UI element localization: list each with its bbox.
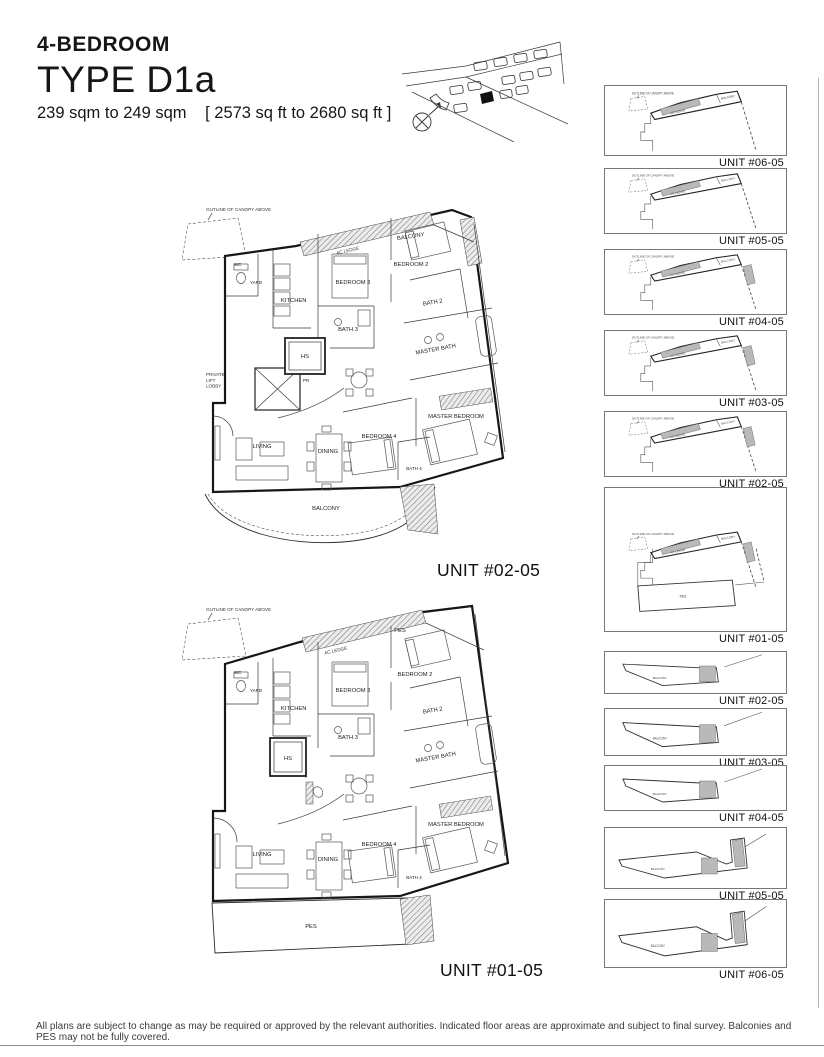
- room-label-dining: DINING: [318, 857, 339, 863]
- keyplan-label: UNIT #02-05: [604, 694, 787, 707]
- room-label-bedroom4: BEDROOM 4: [362, 842, 398, 848]
- site-buildings: [430, 49, 551, 113]
- room-label-pes-bottom: PES: [305, 924, 317, 930]
- room-label-master-bedroom: MASTER BEDROOM: [428, 822, 484, 828]
- keyplan-label: UNIT #06-05: [604, 968, 787, 981]
- disclaimer-text: All plans are subject to change as may b…: [36, 1021, 806, 1043]
- room-label-wc: WC: [234, 670, 242, 675]
- site-highlighted-block: [480, 91, 494, 104]
- brochure-page: OUTLINE OF CANOPY ABOVE AC LEDGE BALCONY: [0, 0, 824, 1057]
- room-label-bedroom2: BEDROOM 2: [394, 262, 429, 268]
- room-label-dining: DINING: [318, 449, 339, 455]
- keyplan-item-unit-05-05-pes: UNIT #05-05: [604, 827, 787, 902]
- room-label-bedroom3: BEDROOM 3: [336, 688, 371, 694]
- keyplan-item-unit-03-05: UNIT #03-05: [604, 330, 787, 409]
- canopy-outline: OUTLINE OF CANOPY ABOVE: [182, 607, 271, 660]
- keyplan-item-unit-06-05-pes: UNIT #06-05: [604, 899, 787, 981]
- room-label-bedroom4: BEDROOM 4: [362, 434, 398, 440]
- keyplan-box: [604, 708, 787, 756]
- keyplan-label: UNIT #04-05: [604, 811, 787, 824]
- room-label-hs: HS: [284, 756, 292, 762]
- keyplan-box: [604, 411, 787, 477]
- keyplan-box: [604, 765, 787, 811]
- room-label-yard: YARD: [250, 688, 263, 693]
- page-border-bottom: [0, 1045, 824, 1046]
- keyplan-item-unit-03-05-pes: UNIT #03-05: [604, 708, 787, 769]
- keyplan-label: UNIT #04-05: [604, 315, 787, 328]
- room-label-master-bedroom: MASTER BEDROOM: [428, 414, 484, 420]
- floor-plan-unit-01-05: OUTLINE OF CANOPY ABOVE: [178, 596, 523, 971]
- keyplan-item-unit-04-05: UNIT #04-05: [604, 249, 787, 328]
- area-imperial: [ 2573 sq ft to 2680 sq ft ]: [205, 104, 391, 122]
- pes-bottom-area: [212, 895, 434, 953]
- canopy-note-label: OUTLINE OF CANOPY ABOVE: [206, 607, 271, 612]
- keyplan-box: [604, 899, 787, 968]
- keyplan-box: [604, 249, 787, 315]
- page-border-right: [818, 78, 819, 1008]
- keyplan-label: UNIT #01-05: [604, 632, 787, 645]
- room-label-living: LIVING: [252, 444, 271, 450]
- keyplan-item-unit-06-05: UNIT #06-05: [604, 85, 787, 169]
- room-label-hs: HS: [301, 354, 309, 360]
- room-label-bath3: BATH 3: [338, 735, 358, 741]
- room-label-yard: YARD: [250, 280, 263, 285]
- area-metric: 239 sqm to 249 sqm: [37, 104, 187, 122]
- keyplan-box: [604, 487, 787, 632]
- plan-area-range: 239 sqm to 249 sqm [ 2573 sq ft to 2680 …: [37, 104, 391, 123]
- keyplan-item-unit-05-05: UNIT #05-05: [604, 168, 787, 247]
- room-label-kitchen: KITCHEN: [281, 706, 306, 712]
- room-label-wc: WC: [234, 262, 242, 267]
- keyplan-item-unit-02-05-pes: UNIT #02-05: [604, 651, 787, 707]
- keyplan-box: [604, 330, 787, 396]
- room-label-pr: PR: [303, 378, 310, 383]
- keyplan-item-unit-01-05: UNIT #01-05: [604, 487, 787, 645]
- keyplan-item-unit-04-05-pes: UNIT #04-05: [604, 765, 787, 824]
- room-label-bath4: BATH 4: [406, 875, 422, 880]
- room-label-private-lift-lobby: PRIVATELIFTLOBBY: [206, 372, 225, 389]
- unit-label-02-05: UNIT #02-05: [437, 560, 540, 581]
- room-label-living: LIVING: [252, 852, 271, 858]
- keyplan-box: [604, 827, 787, 889]
- room-label-kitchen: KITCHEN: [281, 298, 306, 304]
- header: 4-BEDROOM TYPE D1a 239 sqm to 249 sqm [ …: [37, 33, 391, 123]
- unit-label-01-05: UNIT #01-05: [440, 960, 543, 981]
- plan-category-title: 4-BEDROOM: [37, 33, 391, 57]
- keyplan-item-unit-02-05: UNIT #02-05: [604, 411, 787, 490]
- room-label-bath4: BATH 4: [406, 466, 422, 471]
- room-label-bath3: BATH 3: [338, 327, 358, 333]
- room-label-bedroom2: BEDROOM 2: [398, 672, 433, 678]
- plan-type-title: TYPE D1a: [37, 59, 391, 101]
- keyplan-box: [604, 85, 787, 156]
- room-label-pes-top: PES: [394, 628, 406, 634]
- keyplan-box: [604, 168, 787, 234]
- keyplan-label: UNIT #05-05: [604, 234, 787, 247]
- keyplan-box: [604, 651, 787, 694]
- floor-plan-unit-02-05: OUTLINE OF CANOPY ABOVE: [178, 190, 520, 562]
- keyplan-label: UNIT #03-05: [604, 396, 787, 409]
- room-label-balcony-bottom: BALCONY: [312, 506, 340, 512]
- room-label-bedroom3: BEDROOM 3: [336, 280, 371, 286]
- balcony-bottom: [205, 484, 438, 543]
- canopy-note-label: OUTLINE OF CANOPY ABOVE: [206, 207, 271, 212]
- site-key-plan: [396, 24, 568, 142]
